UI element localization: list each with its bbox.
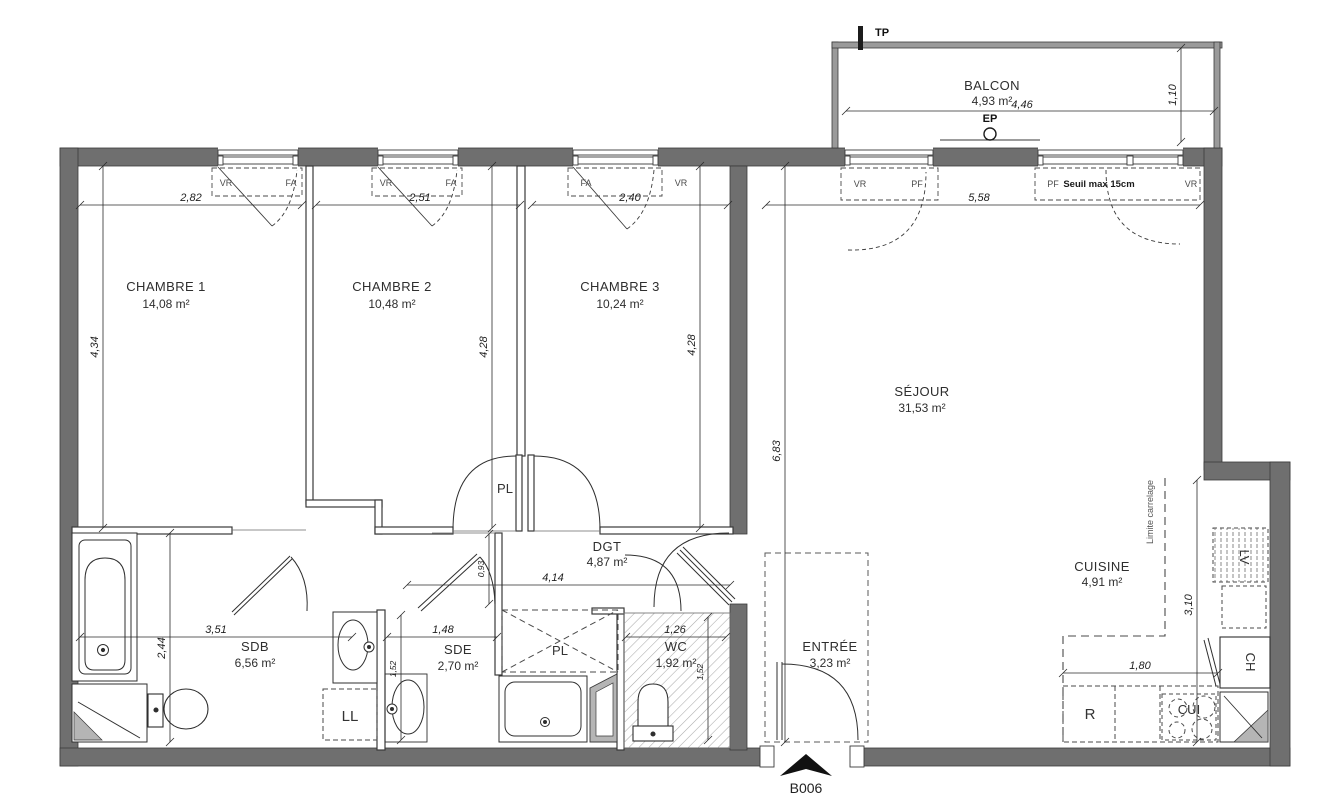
room-label-sdb: SDB 6,56 m² (235, 639, 276, 670)
window-tag: VR (1185, 179, 1198, 189)
svg-text:6,83: 6,83 (771, 439, 783, 461)
kitchen-corner-duct (1220, 692, 1268, 742)
room-label-chambre1: CHAMBRE 1 14,08 m² (126, 279, 205, 311)
wall-bottom-left (60, 748, 772, 766)
closet-hallway-label: PL (552, 643, 568, 658)
balcony-wall-left (832, 42, 838, 148)
door-arc-wc (625, 555, 681, 611)
room-label-sde: SDE 2,70 m² (438, 642, 479, 673)
room-label-dgt: DGT 4,87 m² (587, 539, 628, 569)
unit-code: B006 (790, 780, 823, 796)
svg-text:3,10: 3,10 (1183, 593, 1195, 615)
closet-hallway (502, 610, 618, 672)
room-name: CUISINE (1074, 559, 1130, 574)
dim-ch2-depth: 4,28 (478, 162, 496, 532)
shower (499, 676, 587, 742)
svg-text:2,51: 2,51 (408, 192, 430, 204)
hob (1162, 694, 1216, 740)
entry-jamb-right (850, 746, 864, 767)
window-tag: VR (675, 178, 688, 188)
svg-text:1,26: 1,26 (664, 624, 686, 636)
svg-text:2,40: 2,40 (618, 192, 641, 204)
svg-text:1,10: 1,10 (1167, 83, 1179, 105)
wall-chambre3-sejour (730, 166, 747, 534)
partition-sde-pl (495, 533, 502, 675)
dim-dgt-depth: 0,93 (476, 530, 493, 608)
room-area: 2,70 m² (438, 659, 479, 673)
partition-sdb-sde (377, 610, 385, 750)
toilet-wc (633, 684, 673, 741)
room-area: 1,92 m² (656, 656, 697, 670)
room-name: CHAMBRE 2 (352, 279, 431, 294)
closet-door-leaf-ch3 (528, 455, 534, 531)
duct-wedge-inner (596, 683, 613, 736)
dim-ch1-width: 2,82 (76, 192, 306, 209)
kitchen: Limite carrelage LV CH R CUI (1063, 478, 1270, 742)
dim-ch3-depth: 4,28 (686, 162, 704, 532)
svg-text:1,52: 1,52 (695, 663, 705, 680)
window-threshold-note: Seuil max 15cm (1063, 179, 1134, 190)
window-tag: FA (285, 178, 296, 188)
closet-bedrooms-label: PL (497, 481, 513, 496)
dim-dgt-width: 4,14 (403, 572, 734, 589)
window-chambre3 (573, 150, 658, 165)
room-area: 4,91 m² (1082, 575, 1123, 589)
ep-downpipe-icon (984, 128, 996, 140)
svg-text:5,58: 5,58 (968, 192, 990, 204)
dishwasher-zone: LV (1213, 528, 1268, 582)
dim-sejour-depth: 6,83 (771, 162, 789, 746)
floor-plan-drawing: TP EP BALCON 4,93 m² (0, 0, 1322, 800)
closet-door-leaf-ch2 (516, 455, 522, 531)
window-sejour-left (845, 150, 933, 165)
tp-duct-icon (858, 26, 863, 50)
svg-text:1,52: 1,52 (388, 660, 398, 677)
dim-ch3-width: 2,40 (528, 192, 732, 209)
balcon-area: 4,93 m² (972, 94, 1013, 108)
svg-text:1,48: 1,48 (432, 624, 454, 636)
svg-text:2,82: 2,82 (179, 192, 201, 204)
ep-label: EP (983, 113, 998, 125)
partition-dgt-north-east (600, 527, 733, 534)
partition-wc-west (617, 610, 624, 750)
door-arc-chambre3 (534, 456, 600, 530)
balcon-name: BALCON (964, 78, 1020, 93)
room-name: CHAMBRE 1 (126, 279, 205, 294)
room-area: 3,23 m² (810, 656, 851, 670)
entry-jamb-left (760, 746, 774, 767)
door-sejour-dgt (654, 533, 735, 607)
wall-wc-east (730, 604, 747, 750)
room-name: SDB (241, 639, 269, 654)
room-name: CHAMBRE 3 (580, 279, 659, 294)
svg-text:0,93: 0,93 (476, 560, 486, 577)
partition-wc-north (592, 608, 624, 614)
door-entry (777, 662, 858, 740)
tile-limit-label: Limite carrelage (1145, 480, 1155, 544)
door-chambre1 (232, 556, 307, 615)
window-tag: PF (911, 179, 923, 189)
room-name: DGT (593, 539, 622, 554)
room-area: 4,87 m² (587, 555, 628, 569)
svg-text:4,14: 4,14 (542, 572, 563, 584)
fridge-label: R (1085, 706, 1096, 723)
dim-sejour-width: 5,58 (762, 192, 1204, 209)
wall-right-upper (1204, 148, 1222, 470)
dim-cuisine-width: 1,80 (1059, 660, 1222, 677)
sink-sdb (333, 612, 377, 683)
room-label-chambre2: CHAMBRE 2 10,48 m² (352, 279, 431, 311)
svg-text:4,28: 4,28 (686, 333, 698, 355)
room-area: 10,24 m² (596, 297, 643, 311)
toilet-sdb (148, 689, 208, 729)
room-label-cuisine: CUISINE 4,91 m² (1074, 559, 1130, 589)
room-label-entree: ENTRÉE 3,23 m² (802, 639, 857, 670)
water-heater-label: CH (1243, 653, 1258, 672)
window-chambre1 (218, 150, 298, 165)
wall-right-lower (1270, 462, 1290, 766)
svg-text:1,80: 1,80 (1129, 660, 1151, 672)
balcony-wall-right (1214, 42, 1220, 148)
window-tag: VR (854, 179, 867, 189)
washing-machine-label: LL (342, 708, 359, 725)
window-tag: VR (380, 178, 393, 188)
window-tag: VR (220, 178, 233, 188)
wall-bottom-right (852, 748, 1290, 766)
room-name: WC (665, 639, 687, 654)
svg-text:4,28: 4,28 (478, 335, 490, 357)
window-chambre2 (378, 150, 458, 165)
room-label-chambre3: CHAMBRE 3 10,24 m² (580, 279, 659, 311)
svg-text:3,51: 3,51 (205, 624, 226, 636)
floor-plan: TP EP BALCON 4,93 m² (0, 0, 1322, 800)
bathtub (72, 533, 137, 681)
dishwasher-label: LV (1237, 550, 1252, 565)
svg-text:2,44: 2,44 (156, 637, 168, 659)
room-area: 10,48 m² (368, 297, 415, 311)
partition-ch2-ch3 (517, 166, 525, 456)
svg-text:4,46: 4,46 (1011, 99, 1033, 111)
balcony: TP EP BALCON 4,93 m² (832, 26, 1222, 148)
kitchen-unit-zone (1222, 586, 1266, 628)
room-name: SDE (444, 642, 472, 657)
window-tag: FA (445, 178, 456, 188)
entry-marker-icon (780, 754, 832, 776)
dim-balcon-depth: 1,10 (1167, 44, 1185, 146)
room-label-sejour: SÉJOUR 31,53 m² (894, 384, 949, 415)
tp-label: TP (875, 27, 889, 39)
sdb-vanity (72, 684, 147, 742)
dim-ch1-depth: 4,34 (89, 162, 107, 532)
room-name: SÉJOUR (894, 384, 949, 399)
window-tag: PF (1047, 179, 1059, 189)
svg-text:4,34: 4,34 (89, 336, 101, 357)
window-swing-line-ch1 (218, 167, 272, 226)
washing-machine-zone: LL (323, 689, 377, 740)
partition-ch1-ch2 (306, 166, 313, 504)
room-area: 6,56 m² (235, 656, 276, 670)
water-heater: CH (1204, 637, 1270, 688)
dim-balcon-width: 4,46 (842, 99, 1218, 115)
room-name: ENTRÉE (802, 639, 857, 654)
window-sejour-right (1038, 150, 1183, 165)
room-area: 31,53 m² (898, 401, 945, 415)
window-tag: FA (580, 178, 591, 188)
room-area: 14,08 m² (142, 297, 189, 311)
partition-ch1-jog-h (306, 500, 382, 507)
balcony-wall-top (832, 42, 1222, 48)
sink-sde (385, 674, 427, 742)
